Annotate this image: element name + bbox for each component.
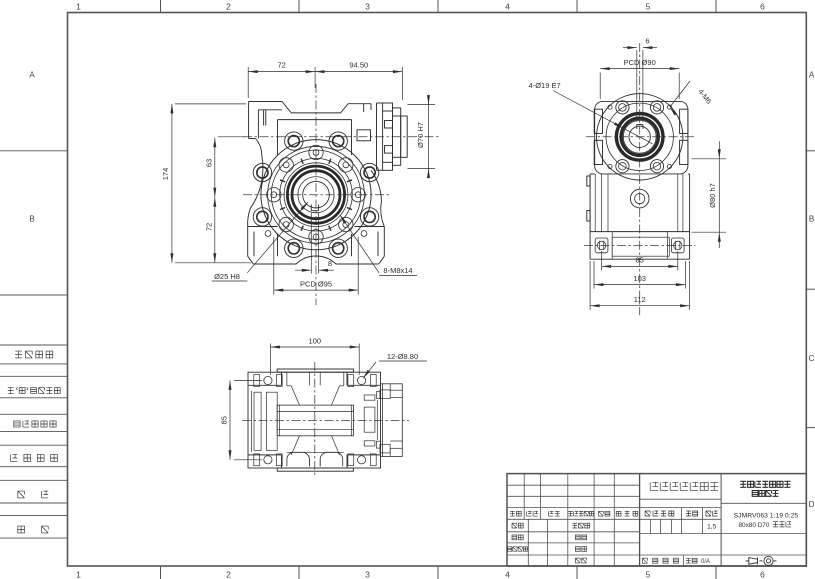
svg-text:0/A: 0/A <box>701 559 710 565</box>
svg-text:6: 6 <box>760 2 765 12</box>
svg-text:Ø80 h7: Ø80 h7 <box>708 183 717 208</box>
svg-text:6: 6 <box>645 37 649 46</box>
svg-text:72: 72 <box>278 61 286 70</box>
svg-text:D: D <box>809 500 815 509</box>
svg-text:1,5: 1,5 <box>707 524 716 531</box>
svg-text:PCD Ø90: PCD Ø90 <box>624 58 656 67</box>
svg-text:PCD Ø95: PCD Ø95 <box>300 279 332 288</box>
svg-text:5: 5 <box>646 570 651 579</box>
svg-text:Ø70 H7: Ø70 H7 <box>416 122 425 148</box>
svg-text:1: 1 <box>76 570 81 579</box>
svg-text:63: 63 <box>204 159 213 167</box>
svg-text:6: 6 <box>760 570 765 579</box>
svg-text:8-M8x14: 8-M8x14 <box>383 266 412 275</box>
svg-text:80x80 D70: 80x80 D70 <box>739 522 770 529</box>
svg-text:B: B <box>809 215 814 224</box>
svg-text:103: 103 <box>633 274 646 283</box>
svg-text:72: 72 <box>204 223 213 231</box>
svg-text:4: 4 <box>505 570 510 579</box>
svg-text:3: 3 <box>365 2 370 12</box>
svg-text:2: 2 <box>226 570 231 579</box>
svg-text:12-Ø8.80: 12-Ø8.80 <box>387 352 418 361</box>
svg-text:2: 2 <box>226 2 231 12</box>
svg-text:4-Ø19 E7: 4-Ø19 E7 <box>529 81 561 90</box>
svg-text:85: 85 <box>220 416 229 424</box>
svg-text:C: C <box>809 354 815 363</box>
svg-text:B: B <box>29 215 34 224</box>
svg-text:5: 5 <box>646 2 651 12</box>
svg-text:85: 85 <box>636 256 644 265</box>
svg-text:SJMRV063 1:19 0:25: SJMRV063 1:19 0:25 <box>734 512 799 519</box>
svg-text:A: A <box>29 71 35 80</box>
svg-text:174: 174 <box>161 168 170 181</box>
svg-text:4: 4 <box>505 2 510 12</box>
svg-text:A: A <box>809 71 815 80</box>
svg-text:8: 8 <box>328 259 332 268</box>
svg-text:100: 100 <box>309 336 322 345</box>
svg-text:94.50: 94.50 <box>349 61 368 70</box>
svg-text:Ø25 H8: Ø25 H8 <box>214 272 240 281</box>
svg-text:112: 112 <box>634 295 646 304</box>
svg-text:1: 1 <box>76 2 81 12</box>
svg-text:3: 3 <box>365 570 370 579</box>
